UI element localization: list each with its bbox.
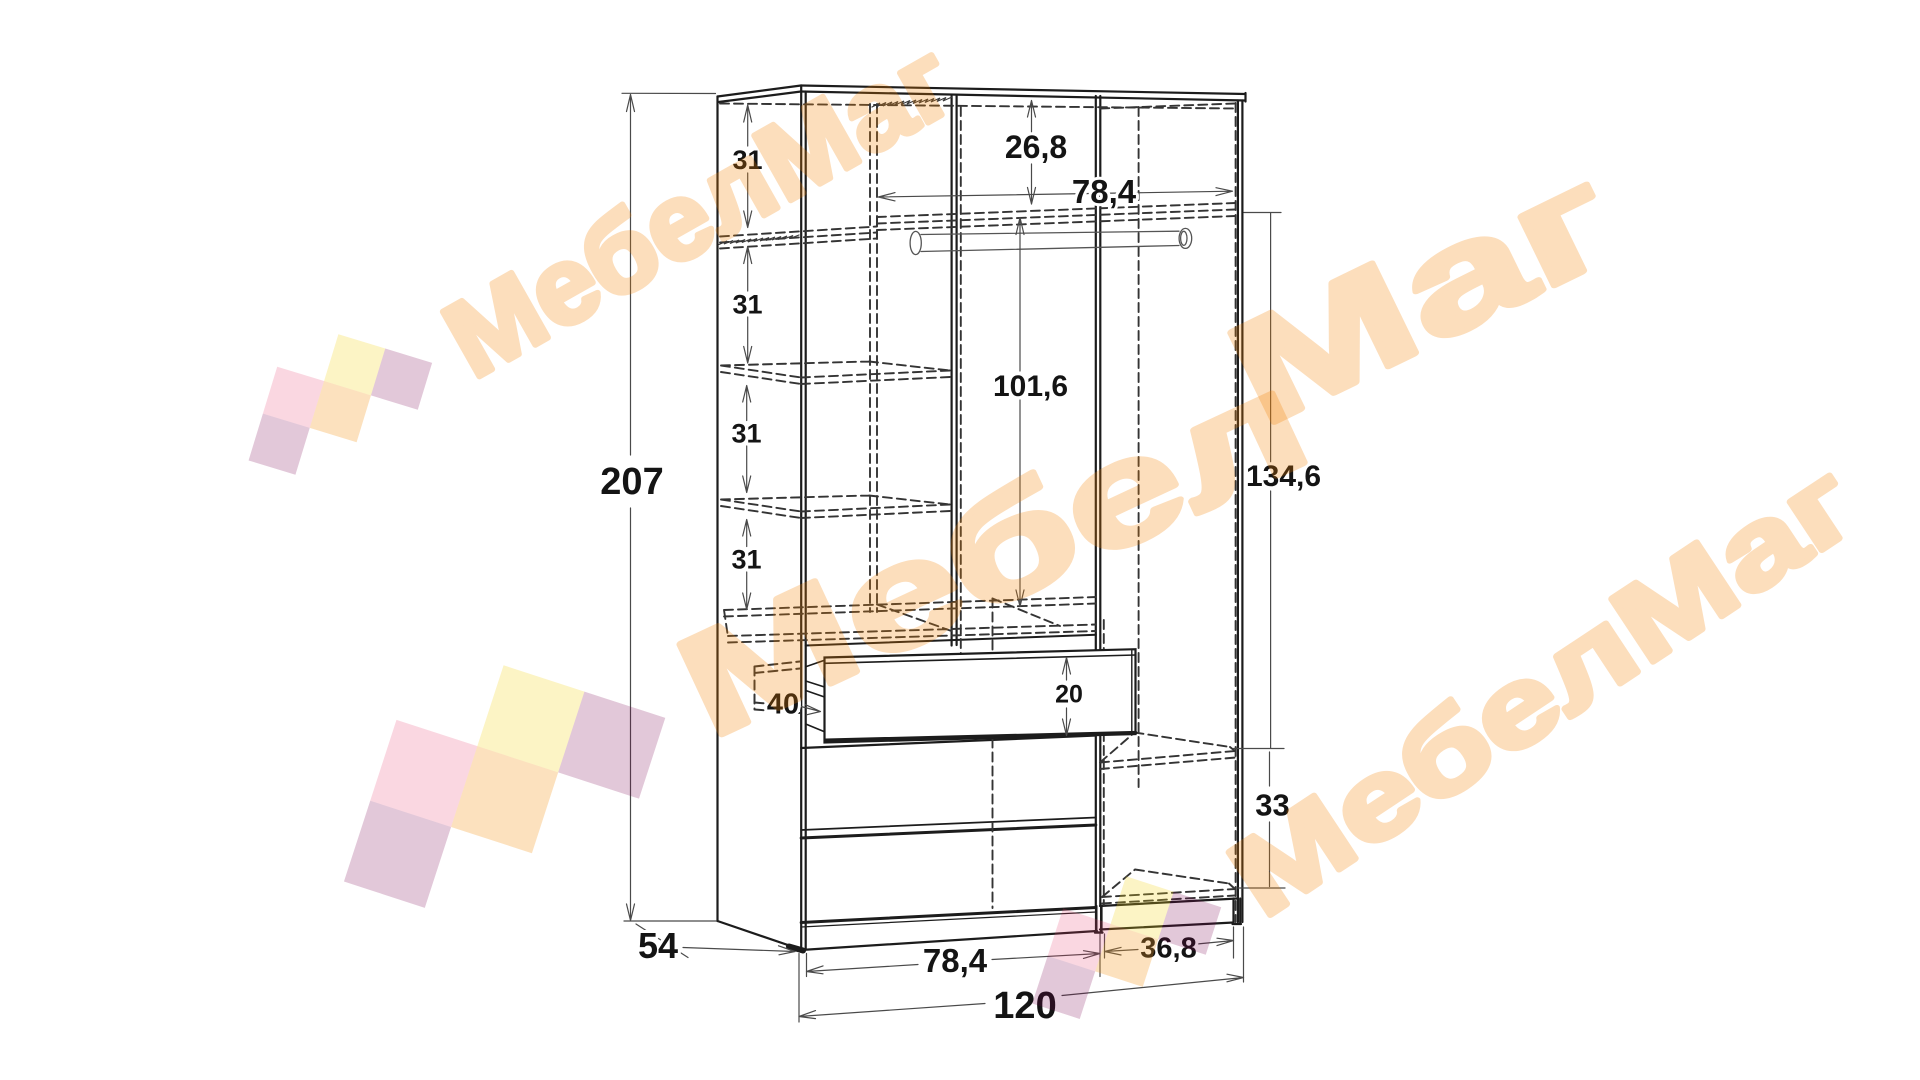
svg-text:31: 31	[731, 545, 761, 575]
svg-text:207: 207	[600, 461, 663, 503]
svg-text:78,4: 78,4	[1072, 173, 1137, 210]
svg-text:101,6: 101,6	[993, 370, 1068, 403]
svg-text:54: 54	[638, 925, 678, 966]
svg-text:31: 31	[732, 290, 762, 320]
svg-text:78,4: 78,4	[923, 942, 988, 979]
svg-text:20: 20	[1055, 681, 1083, 709]
svg-text:26,8: 26,8	[1005, 129, 1067, 165]
svg-text:31: 31	[731, 419, 761, 449]
